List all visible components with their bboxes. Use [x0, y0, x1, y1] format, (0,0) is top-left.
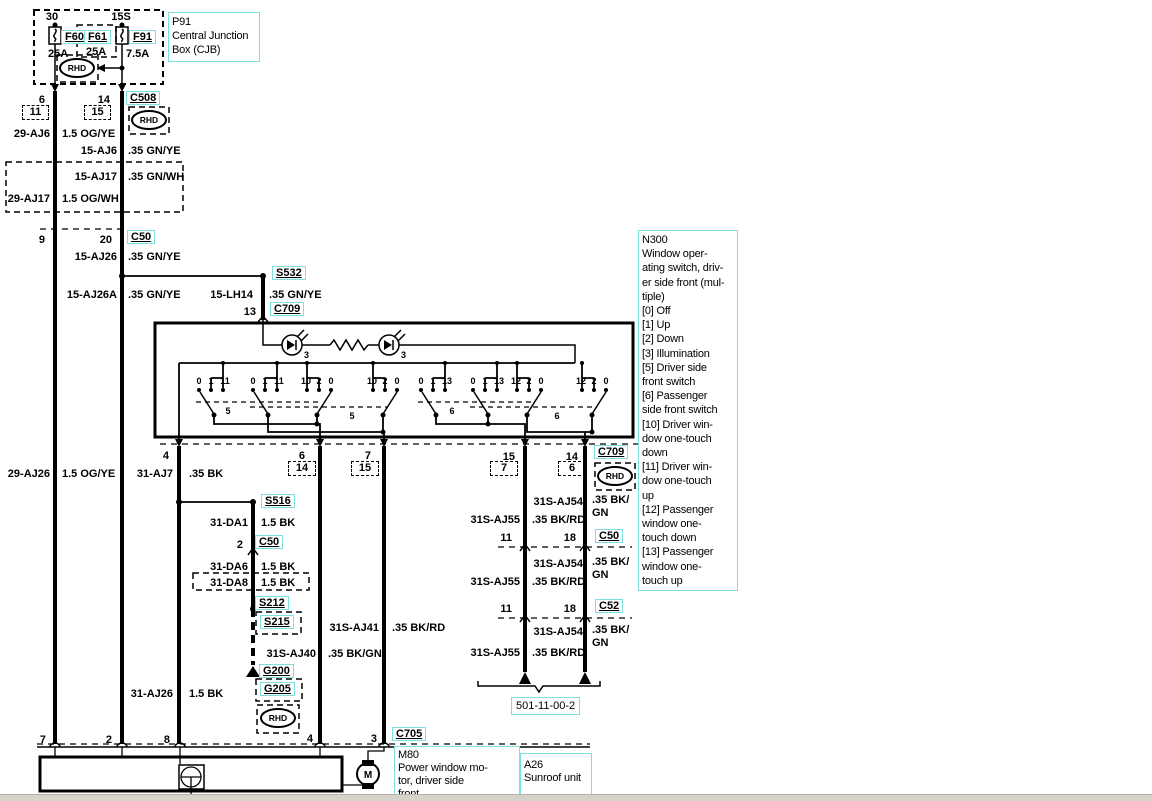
link-connector-c50-right[interactable]: C50 [595, 529, 623, 543]
wire-29aj26-id: 29-AJ26 [8, 468, 50, 480]
wire-31aj7-id: 31-AJ7 [137, 468, 173, 480]
link-connector-c52[interactable]: C52 [595, 599, 623, 613]
wire-31saj41-id: 31S-AJ41 [329, 622, 379, 634]
wire-31da1-id: 31-DA1 [210, 517, 248, 529]
wire-31aj26-spec: 1.5 BK [189, 688, 223, 700]
link-label-5a: 5 [225, 406, 230, 416]
alt-pin-15b: 15 [351, 461, 379, 476]
link-label-5b: 5 [349, 411, 354, 421]
contact-label: 0 [603, 376, 608, 386]
switch-exit-arrows [175, 439, 589, 447]
link-connector-c709-right[interactable]: C709 [594, 445, 628, 459]
switch-levers [200, 392, 606, 414]
rhd-text-c508: RHD [140, 115, 158, 125]
contact-label: 0 [470, 376, 475, 386]
led-1-value: 3 [304, 350, 309, 360]
wire-31saj41-spec: .35 BK/RD [392, 622, 445, 634]
contact-label: 2 [316, 376, 321, 386]
contact-label: 1 [262, 376, 267, 386]
wire-31saj54-spec2-2: GN [592, 569, 609, 581]
fuse-f60-rating: 25A [48, 48, 68, 60]
wire-15lh14-id: 15-LH14 [210, 289, 254, 301]
contact-drops [211, 363, 594, 388]
pin-7-c705: 7 [40, 734, 46, 746]
terminal-30-label: 30 [46, 11, 58, 23]
fuse-f91-rating: 7.5A [126, 48, 149, 60]
contact-label: 0 [538, 376, 543, 386]
connector-boundary-lines [37, 229, 640, 744]
contact-label: 0 [418, 376, 423, 386]
led-2-value: 3 [401, 350, 406, 360]
wire-31da6-spec: 1.5 BK [261, 561, 295, 573]
wire-15aj26a-spec: .35 GN/YE [128, 289, 181, 301]
contact-label: 10 [367, 376, 377, 386]
contact-label: 2 [591, 376, 596, 386]
wire-31saj54-id-3: 31S-AJ54 [533, 626, 583, 638]
window-bottom-bar [0, 794, 1152, 801]
contact-label: 2 [526, 376, 531, 386]
feed-arrow-left [51, 84, 59, 92]
fuse-f61-rating: 25A [86, 46, 106, 58]
link-connector-c50-mid[interactable]: C50 [255, 535, 283, 549]
wire-31saj55-id-1: 31S-AJ55 [470, 514, 520, 526]
link-connector-c709-top[interactable]: C709 [270, 302, 304, 316]
alt-pin-7: 7 [490, 461, 518, 476]
wire-31da8-id: 31-DA8 [210, 577, 248, 589]
wire-31saj54-spec2-1: GN [592, 507, 609, 519]
contact-label: 0 [250, 376, 255, 386]
link-splice-s532[interactable]: S532 [272, 266, 306, 280]
wire-31saj55-spec-2: .35 BK/RD [532, 576, 585, 588]
switch-lower-routing [214, 415, 592, 439]
pin-11-c52: 11 [500, 603, 512, 615]
contact-label: 10 [301, 376, 311, 386]
motor-terminal-bottom [362, 783, 374, 789]
cjb-title-box: P91 Central Junction Box (CJB) [168, 12, 260, 62]
wire-15aj26a-id: 15-AJ26A [67, 289, 117, 301]
contact-label: 1 [208, 376, 213, 386]
link-fuse-f61[interactable]: F61 [84, 30, 111, 44]
pin-4-c705: 4 [307, 733, 314, 745]
contact-label: 2 [382, 376, 387, 386]
pin-4-switch: 4 [163, 450, 170, 462]
contact-label: 0 [394, 376, 399, 386]
pin-13: 13 [244, 306, 256, 318]
wire-29aj17-spec: 1.5 OG/WH [62, 193, 119, 205]
n300-description-box: N300 Window oper- ating switch, driv- er… [638, 230, 738, 591]
pin-9: 9 [39, 234, 45, 246]
motor-terminal-top [362, 760, 374, 766]
wire-31saj54-spec2-3: GN [592, 637, 609, 649]
pin-2-c50: 2 [237, 539, 243, 551]
wire-15aj26-spec: .35 GN/YE [128, 251, 181, 263]
pin-20: 20 [100, 234, 112, 246]
wire-31saj40-id: 31S-AJ40 [266, 648, 316, 660]
contact-label: 0 [196, 376, 201, 386]
link-fuse-f91[interactable]: F91 [129, 30, 156, 44]
wire-31da8-spec: 1.5 BK [261, 577, 295, 589]
contact-label: 12 [576, 376, 586, 386]
wire-31da1-spec: 1.5 BK [261, 517, 295, 529]
a26-description-box: A26 Sunroof unit [520, 753, 592, 799]
pin-2-c705: 2 [106, 734, 112, 746]
pin-18-c50: 18 [564, 532, 576, 544]
wire-15aj6-spec: .35 GN/YE [128, 145, 181, 157]
m80-description-box: M80 Power window mo- tor, driver side fr… [394, 746, 520, 801]
link-connector-c508[interactable]: C508 [126, 91, 160, 105]
wire-29aj6-id: 29-AJ6 [14, 128, 50, 140]
wire-15aj17-id: 15-AJ17 [75, 171, 117, 183]
link-splice-s215[interactable]: S215 [260, 615, 294, 629]
wire-31saj54-id-2: 31S-AJ54 [533, 558, 583, 570]
contact-label: 11 [274, 376, 284, 386]
link-label-6b: 6 [554, 411, 559, 421]
terminal-15s-label: 15S [111, 11, 131, 23]
rhd-text-cjb: RHD [68, 63, 86, 73]
wire-31saj54-id-1: 31S-AJ54 [533, 496, 583, 508]
led-1-triangle [287, 340, 295, 350]
led-circuit-line [263, 320, 575, 363]
pin-11-c50: 11 [500, 532, 512, 544]
contact-label: 13 [442, 376, 452, 386]
wire-15aj6-id: 15-AJ6 [81, 145, 117, 157]
page-reference-501-11-00-2[interactable]: 501-11-00-2 [511, 697, 580, 715]
contact-label: 12 [511, 376, 521, 386]
motor-m-label: M [364, 770, 372, 781]
contact-label: 1 [430, 376, 435, 386]
wire-31saj55-id-2: 31S-AJ55 [470, 576, 520, 588]
wire-31saj55-spec-1: .35 BK/RD [532, 514, 585, 526]
rhd-text-ground: RHD [269, 713, 287, 723]
wiring-diagram-page: 30 15S 25A 25A 7.5A RHD RHD RHD RHD 6 14… [0, 0, 1152, 801]
contact-label: 0 [328, 376, 333, 386]
alt-pin-6: 6 [558, 461, 586, 476]
link-splice-s212[interactable]: S212 [255, 596, 289, 610]
led-2-triangle [384, 340, 392, 350]
fuse-f91-element [121, 29, 123, 42]
fuse-f60-element [54, 29, 56, 42]
alt-pin-15: 15 [84, 105, 111, 120]
offpage-triangle-2 [579, 672, 591, 684]
wire-31saj55-id-3: 31S-AJ55 [470, 647, 520, 659]
switch-bus [179, 363, 575, 439]
wire-31saj54-spec1-2: .35 BK/ [592, 556, 629, 568]
contact-label: 13 [494, 376, 504, 386]
offpage-triangle-1 [519, 672, 531, 684]
alt-pin-14: 14 [288, 461, 316, 476]
link-splice-s516[interactable]: S516 [261, 494, 295, 508]
wire-29aj26-spec: 1.5 OG/YE [62, 468, 115, 480]
alt-pin-11: 11 [22, 105, 49, 120]
wire-29aj17-id: 29-AJ17 [8, 193, 50, 205]
link-label-6a: 6 [449, 406, 454, 416]
wire-31aj7-spec: .35 BK [189, 468, 223, 480]
bottom-lead-lines [55, 747, 384, 785]
resistor-symbol [330, 340, 368, 350]
link-connector-c705[interactable]: C705 [392, 727, 426, 741]
wire-15aj17-spec: .35 GN/WH [128, 171, 184, 183]
wire-15lh14-spec: .35 GN/YE [269, 289, 322, 301]
link-ground-g205[interactable]: G205 [260, 682, 295, 696]
pin-18-c52: 18 [564, 603, 576, 615]
wire-31saj55-spec-3: .35 BK/RD [532, 647, 585, 659]
link-connector-c50-top[interactable]: C50 [127, 230, 155, 244]
contact-label: 1 [482, 376, 487, 386]
switch-contact-network [179, 363, 606, 439]
pin-8-c705: 8 [164, 734, 170, 746]
contact-label: 11 [220, 376, 230, 386]
wire-31saj54-spec1-3: .35 BK/ [592, 624, 629, 636]
feed-arrow-right [118, 84, 126, 92]
switch-contact-labels: 0 1 11 0 1 11 10 2 0 10 2 0 0 1 13 0 1 1… [196, 350, 608, 421]
wiring-diagram-canvas: 30 15S 25A 25A 7.5A RHD RHD RHD RHD 6 14… [0, 0, 1152, 801]
wire-15aj26-id: 15-AJ26 [75, 251, 117, 263]
link-ground-g200[interactable]: G200 [259, 664, 294, 678]
wire-31saj40-spec: .35 BK/GN [328, 648, 382, 660]
wire-29aj6-spec: 1.5 OG/YE [62, 128, 115, 140]
rhd-text-c709: RHD [606, 471, 624, 481]
wire-31aj26-id: 31-AJ26 [131, 688, 173, 700]
illumination-circuit [263, 320, 575, 363]
wire-31saj54-spec1-1: .35 BK/ [592, 494, 629, 506]
wire-31da6-id: 31-DA6 [210, 561, 248, 573]
pin-3-c705: 3 [371, 733, 377, 745]
g200-ground-triangle [246, 666, 260, 677]
switch-link-dashes [196, 402, 597, 407]
